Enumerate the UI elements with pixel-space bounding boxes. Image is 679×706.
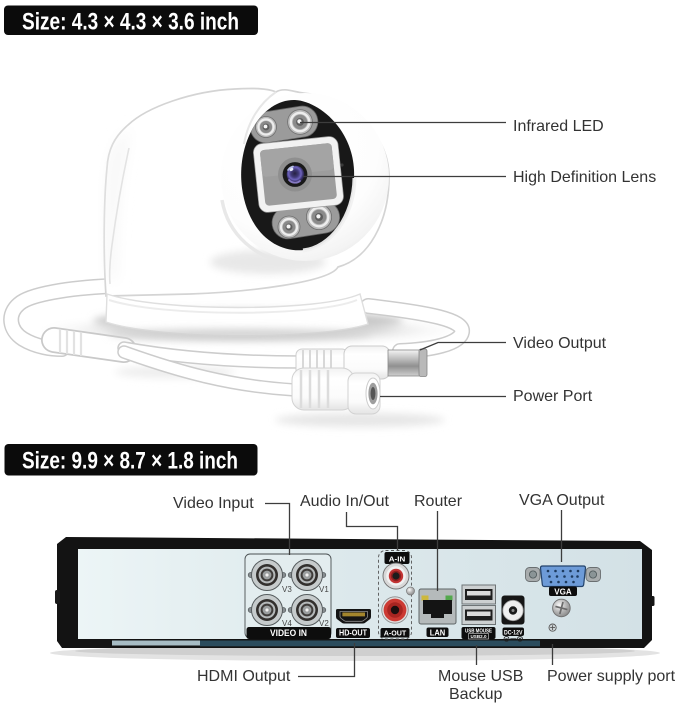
svg-text:Infrared LED: Infrared LED [513,118,604,135]
svg-text:USB2.0: USB2.0 [471,634,487,640]
svg-text:Size: 9.9 × 8.7 × 1.8 inch: Size: 9.9 × 8.7 × 1.8 inch [22,448,238,475]
svg-text:V1: V1 [319,585,329,594]
svg-text:V3: V3 [282,585,292,594]
svg-text:VGA Output: VGA Output [519,492,605,509]
svg-text:Video Output: Video Output [513,335,607,352]
svg-text:Backup: Backup [449,686,502,703]
svg-text:High Definition Lens: High Definition Lens [513,169,656,186]
svg-text:LAN: LAN [430,628,446,637]
svg-text:Audio In/Out: Audio In/Out [300,493,390,510]
svg-text:Power supply port: Power supply port [547,668,676,685]
svg-text:VGA: VGA [554,587,572,596]
svg-text:V4: V4 [282,619,292,628]
svg-text:Power Port: Power Port [513,388,593,405]
svg-text:HD-OUT: HD-OUT [339,629,367,638]
svg-text:HDMI Output: HDMI Output [197,668,291,685]
svg-text:V2: V2 [319,619,329,628]
svg-text:Size: 4.3 × 4.3 × 3.6 inch: Size: 4.3 × 4.3 × 3.6 inch [22,9,239,36]
svg-text:Video Input: Video Input [173,495,254,512]
svg-text:VIDEO IN: VIDEO IN [270,628,307,638]
svg-text:Router: Router [414,493,463,510]
svg-text:A-IN: A-IN [389,555,406,564]
svg-text:Mouse USB: Mouse USB [438,668,523,685]
svg-text:DC-12V: DC-12V [504,630,523,636]
svg-text:A-OUT: A-OUT [384,628,407,637]
